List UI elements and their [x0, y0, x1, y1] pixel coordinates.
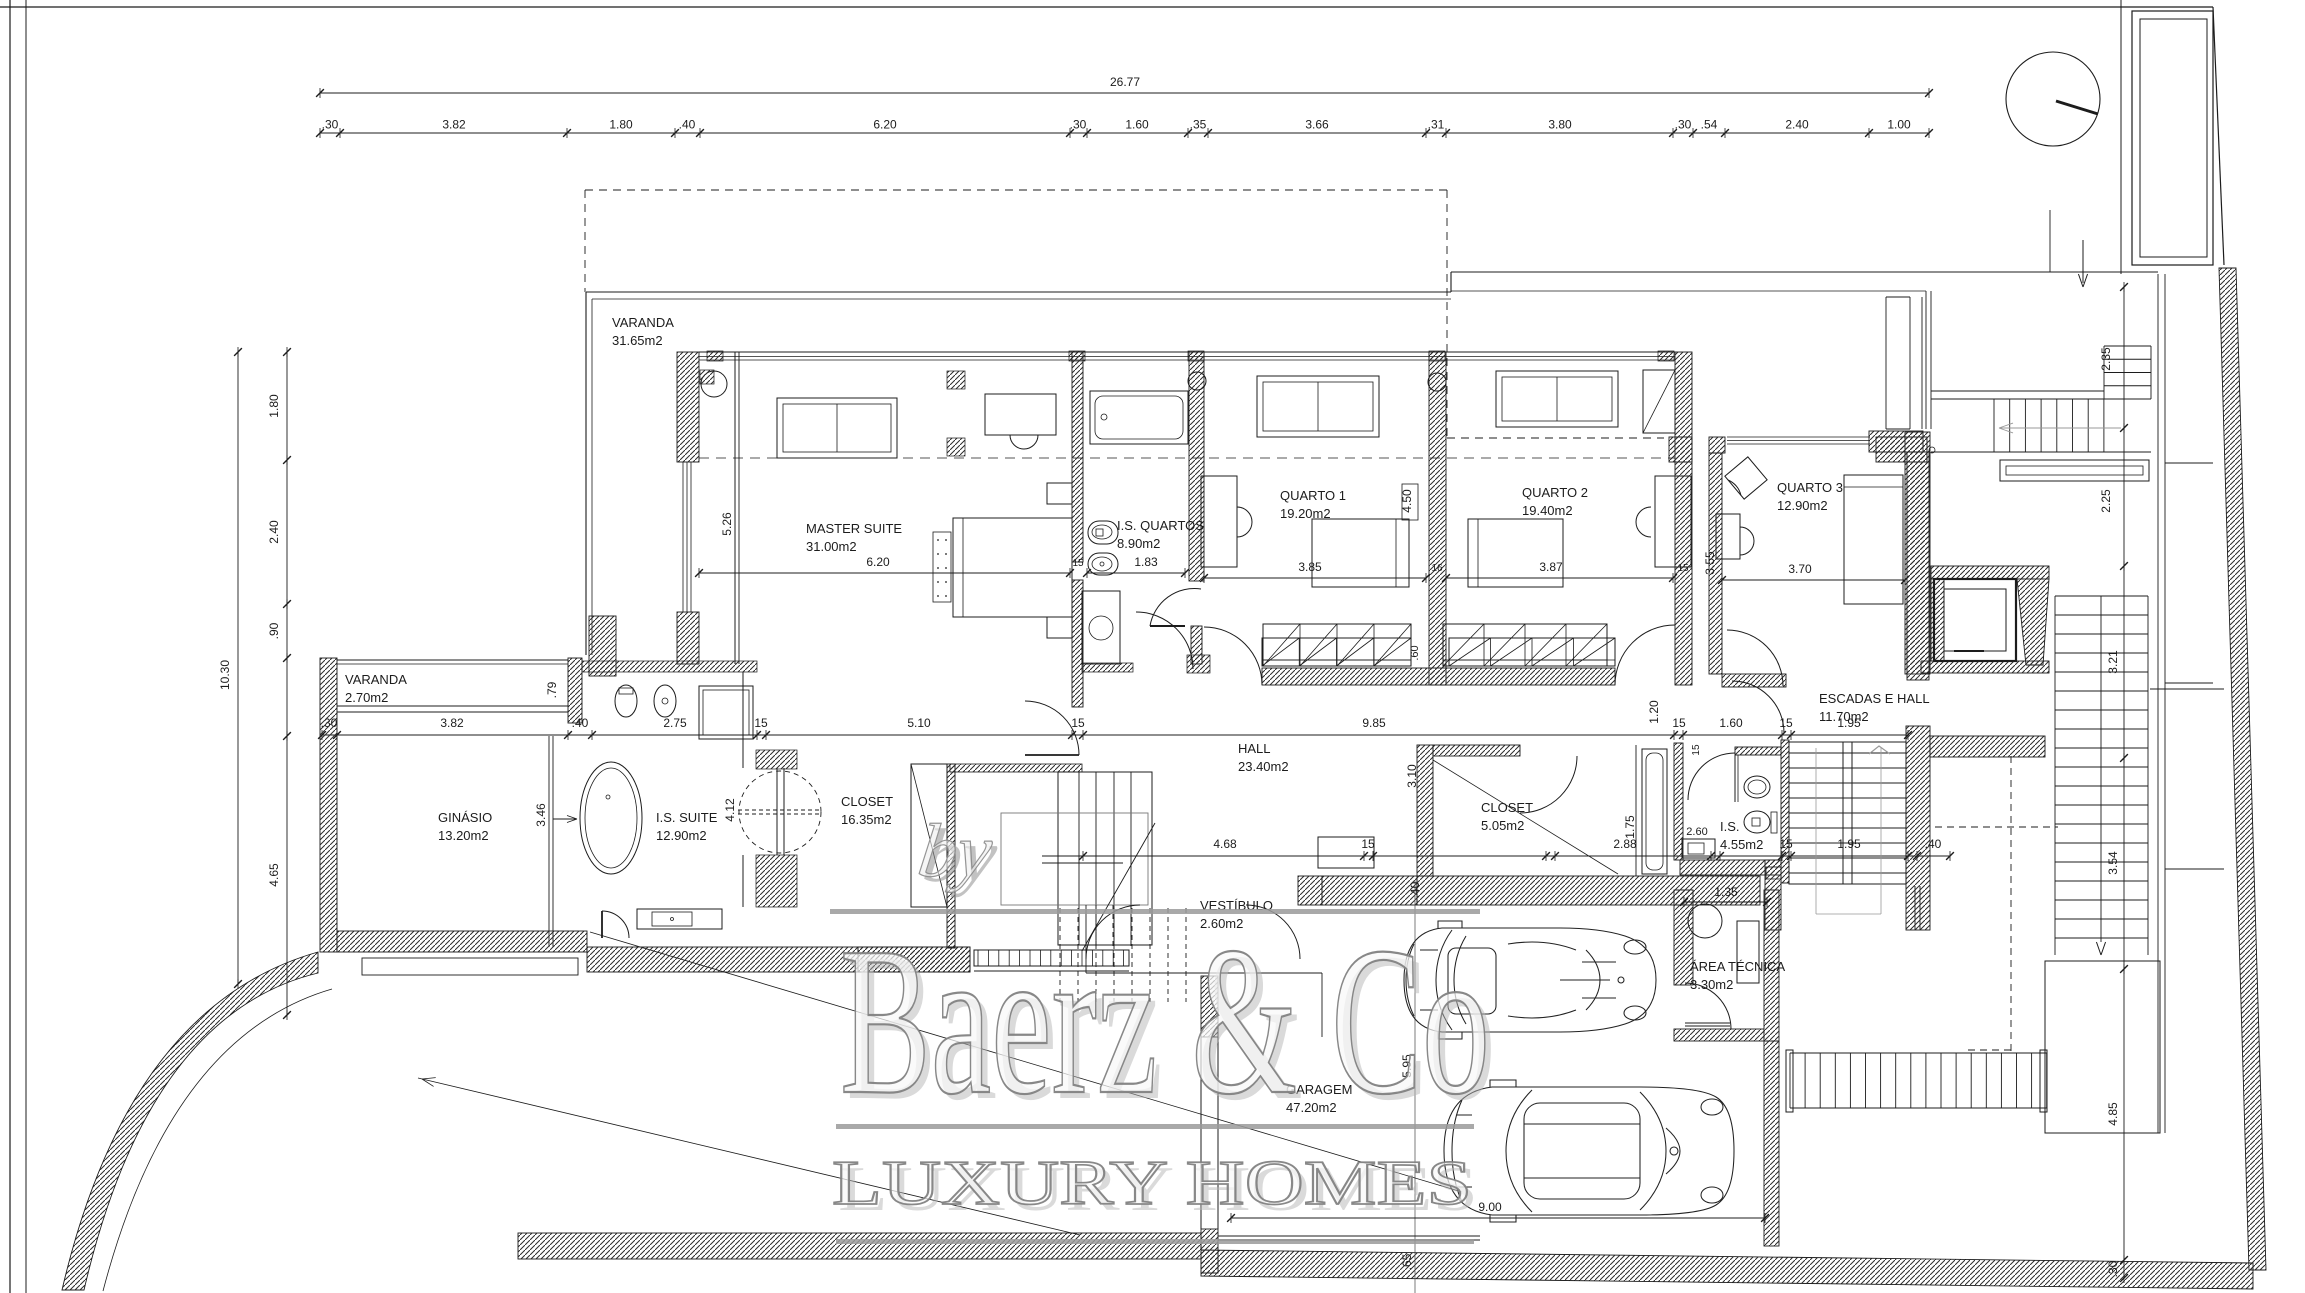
svg-text:3.54: 3.54 [2106, 851, 2120, 875]
svg-text:.30: .30 [1675, 118, 1692, 132]
svg-text:3.70: 3.70 [1788, 562, 1812, 576]
svg-text:12.90m2: 12.90m2 [1777, 498, 1828, 513]
svg-text:5.05m2: 5.05m2 [1481, 818, 1524, 833]
svg-text:.30: .30 [2106, 1260, 2120, 1277]
svg-text:19.40m2: 19.40m2 [1522, 503, 1573, 518]
svg-text:6.20: 6.20 [866, 555, 890, 569]
svg-text:ESCADAS E HALL: ESCADAS E HALL [1819, 691, 1930, 706]
svg-text:1.95: 1.95 [1837, 837, 1861, 851]
svg-text:3.85: 3.85 [1298, 560, 1322, 574]
svg-text:15: 15 [754, 716, 768, 730]
svg-text:.60: .60 [1409, 645, 1421, 660]
svg-text:15: 15 [1779, 716, 1793, 730]
svg-text:.65: .65 [1400, 1253, 1414, 1270]
svg-text:13.20m2: 13.20m2 [438, 828, 489, 843]
svg-text:15: 15 [1691, 744, 1702, 756]
svg-text:4.68: 4.68 [1213, 837, 1237, 851]
svg-text:.40: .40 [679, 118, 696, 132]
svg-text:9.00: 9.00 [1478, 1200, 1502, 1214]
svg-text:26.77: 26.77 [1110, 75, 1140, 89]
svg-text:16: 16 [1431, 563, 1443, 574]
svg-text:I.S.: I.S. [1720, 819, 1740, 834]
svg-text:11.70m2: 11.70m2 [1819, 709, 1869, 724]
svg-text:31.65m2: 31.65m2 [612, 333, 663, 348]
svg-text:23.40m2: 23.40m2 [1238, 759, 1289, 774]
svg-text:3.55: 3.55 [1703, 551, 1717, 575]
svg-text:5.26: 5.26 [720, 512, 734, 536]
svg-text:2.40: 2.40 [267, 520, 281, 544]
svg-text:Baerz & Co: Baerz & Co [840, 903, 1490, 1138]
svg-text:2.40: 2.40 [1785, 118, 1809, 132]
svg-text:GINÁSIO: GINÁSIO [438, 810, 492, 825]
svg-text:QUARTO 3: QUARTO 3 [1777, 480, 1843, 495]
svg-text:QUARTO 2: QUARTO 2 [1522, 485, 1588, 500]
svg-text:4.85: 4.85 [2106, 1102, 2120, 1126]
svg-text:15: 15 [1361, 837, 1375, 851]
svg-text:1.60: 1.60 [1719, 716, 1743, 730]
svg-text:8.90m2: 8.90m2 [1117, 536, 1160, 551]
svg-text:6.20: 6.20 [873, 118, 897, 132]
svg-text:2.35: 2.35 [2099, 347, 2113, 371]
svg-text:1.83: 1.83 [1134, 555, 1158, 569]
svg-text:4.50: 4.50 [1400, 489, 1414, 513]
svg-text:1.80: 1.80 [609, 118, 633, 132]
svg-text:3.66: 3.66 [1305, 118, 1329, 132]
svg-text:1.00: 1.00 [1887, 118, 1911, 132]
svg-text:1.35: 1.35 [1714, 885, 1738, 899]
svg-text:3.80: 3.80 [1548, 118, 1572, 132]
svg-text:4.65: 4.65 [267, 863, 281, 887]
svg-text:HALL: HALL [1238, 741, 1271, 756]
svg-text:2.60: 2.60 [1686, 826, 1707, 838]
svg-text:.31: .31 [1428, 118, 1445, 132]
svg-text:3.21: 3.21 [2106, 650, 2120, 674]
svg-text:ÁREA TÉCNICA: ÁREA TÉCNICA [1690, 959, 1785, 974]
svg-text:I.S. QUARTOS: I.S. QUARTOS [1117, 518, 1204, 533]
svg-text:1.80: 1.80 [267, 394, 281, 418]
svg-text:15: 15 [1072, 558, 1084, 569]
svg-text:VARANDA: VARANDA [612, 315, 674, 330]
svg-text:15: 15 [1677, 563, 1689, 574]
svg-text:16.35m2: 16.35m2 [841, 812, 892, 827]
svg-text:by: by [914, 808, 998, 893]
svg-text:4.55m2: 4.55m2 [1720, 837, 1763, 852]
svg-text:VARANDA: VARANDA [345, 672, 407, 687]
svg-text:15: 15 [1672, 716, 1686, 730]
svg-text:.30: .30 [322, 118, 339, 132]
svg-text:3.82: 3.82 [440, 716, 464, 730]
svg-text:19.20m2: 19.20m2 [1280, 506, 1331, 521]
svg-text:5.10: 5.10 [907, 716, 931, 730]
svg-text:.79: .79 [545, 681, 559, 698]
svg-text:.30: .30 [1070, 118, 1087, 132]
svg-text:3.87: 3.87 [1539, 560, 1563, 574]
svg-text:2.75: 2.75 [663, 716, 687, 730]
svg-text:MASTER SUITE: MASTER SUITE [806, 521, 902, 536]
svg-text:QUARTO 1: QUARTO 1 [1280, 488, 1346, 503]
svg-text:LUXURY HOMES: LUXURY HOMES [832, 1148, 1472, 1218]
svg-text:CLOSET: CLOSET [841, 794, 893, 809]
svg-text:2.25: 2.25 [2099, 489, 2113, 513]
svg-text:3.82: 3.82 [442, 118, 466, 132]
svg-text:2.70m2: 2.70m2 [345, 690, 388, 705]
svg-text:9.85: 9.85 [1362, 716, 1386, 730]
svg-text:.35: .35 [1190, 118, 1207, 132]
svg-text:I.S. SUITE: I.S. SUITE [656, 810, 718, 825]
svg-text:CLOSET: CLOSET [1481, 800, 1533, 815]
svg-text:3.30m2: 3.30m2 [1690, 977, 1733, 992]
svg-text:.54: .54 [1701, 118, 1718, 132]
svg-text:15: 15 [1071, 716, 1085, 730]
svg-text:1.20: 1.20 [1647, 700, 1661, 724]
svg-text:4.12: 4.12 [723, 798, 737, 822]
svg-text:.90: .90 [267, 622, 281, 639]
svg-text:12.90m2: 12.90m2 [656, 828, 707, 843]
svg-text:10.30: 10.30 [218, 660, 232, 690]
svg-text:31.00m2: 31.00m2 [806, 539, 857, 554]
svg-text:1.60: 1.60 [1125, 118, 1149, 132]
svg-text:1.75: 1.75 [1623, 815, 1637, 839]
svg-text:3.46: 3.46 [534, 803, 548, 827]
